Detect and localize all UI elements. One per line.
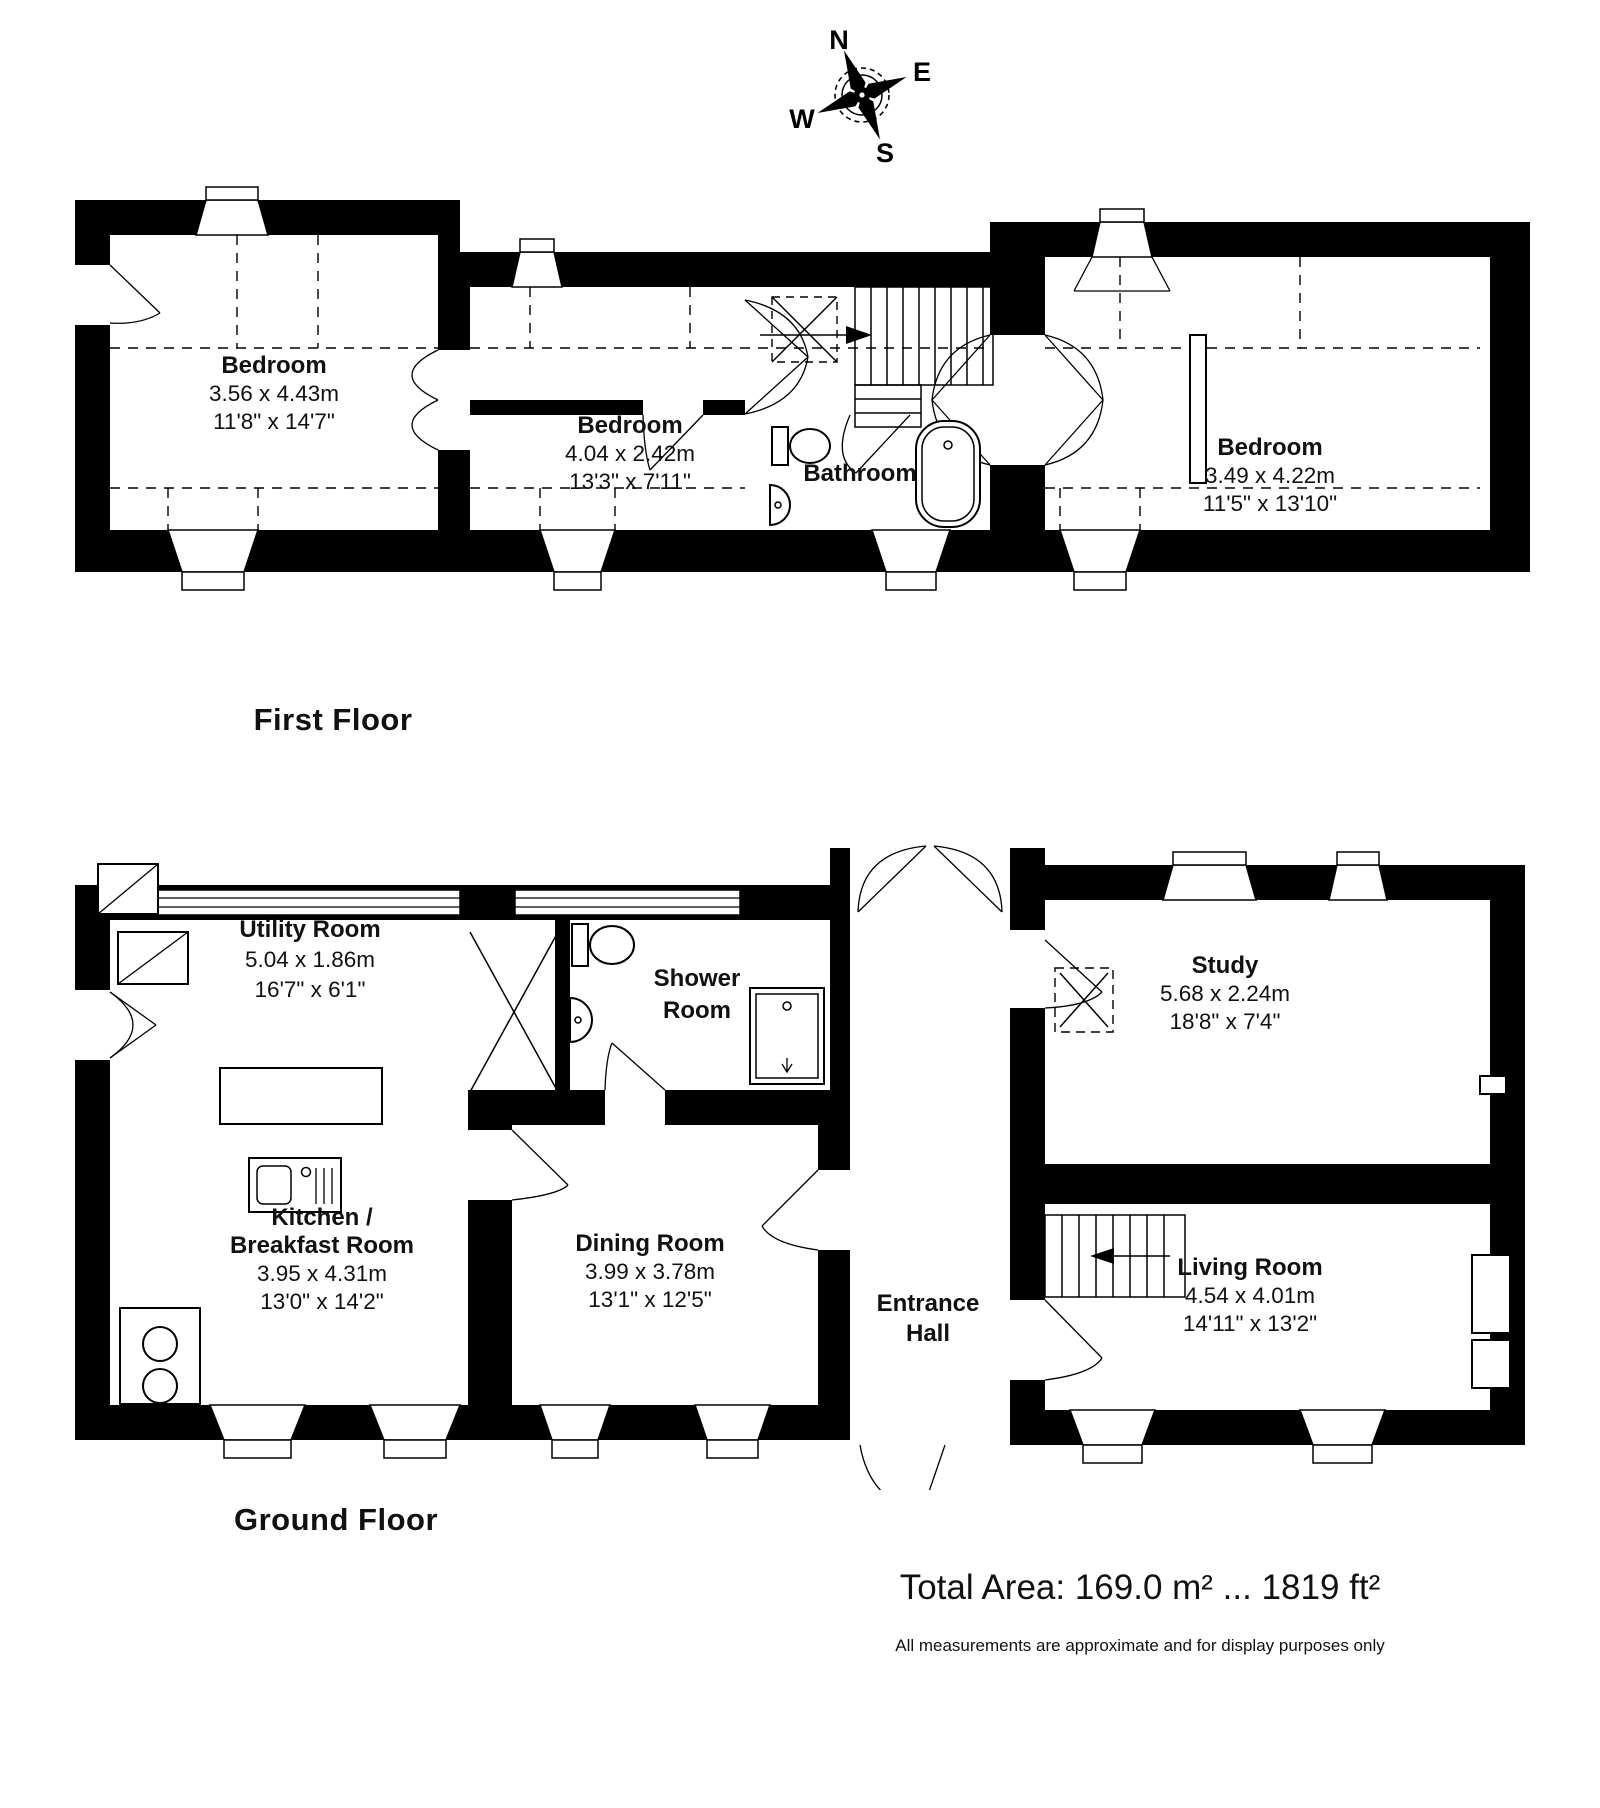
- gf-bay-living-1: [1070, 1410, 1155, 1463]
- ff-bay-bedroom2: [540, 530, 615, 590]
- gf-kitchen-name-1: Kitchen /: [271, 1204, 373, 1231]
- gf-shower-left-wall: [555, 920, 570, 1090]
- ff-bedroom3-metric: 3.49 x 4.22m: [1205, 463, 1335, 488]
- gf-shower-name-1: Shower: [654, 965, 741, 992]
- gf-kitchen-divider-bar: [468, 1200, 512, 1335]
- compass-w: W: [789, 104, 815, 134]
- ff-window-top-left: [196, 187, 268, 235]
- gf-kitchen-metric: 3.95 x 4.31m: [257, 1261, 387, 1286]
- gf-utility-imperial: 16'7" x 6'1": [255, 977, 366, 1002]
- gf-gap-hall-bottom-door: [860, 1410, 945, 1445]
- gf-window-band-left: [155, 890, 460, 915]
- ff-bedroom1-metric: 3.56 x 4.43m: [209, 381, 339, 406]
- gf-living-name: Living Room: [1177, 1254, 1322, 1281]
- gf-study-name: Study: [1192, 952, 1259, 979]
- gf-kitchen-divider-low: [475, 1335, 505, 1405]
- gf-gap-dining-hall: [818, 1170, 850, 1250]
- ff-bedroom2-name: Bedroom: [577, 412, 682, 439]
- gf-utility-counter: [220, 1068, 382, 1124]
- first-floor-title: First Floor: [183, 702, 483, 738]
- compass-rose: N E S W: [740, 25, 980, 170]
- disclaimer-text: All measurements are approximate and for…: [760, 1636, 1520, 1656]
- total-area-text: Total Area: 169.0 m² ... 1819 ft²: [760, 1568, 1520, 1608]
- ff-bathroom-name: Bathroom: [803, 460, 916, 487]
- gf-gap-left-wall: [75, 990, 110, 1060]
- gf-hall-right-wall-top: [1010, 848, 1045, 865]
- gf-gap-kitchen-dining: [468, 1130, 512, 1200]
- gf-study-imperial: 18'8" x 7'4": [1170, 1009, 1281, 1034]
- ff-bedroom3-imperial: 11'5" x 13'10": [1203, 491, 1337, 516]
- gf-divider-study-living-b: [1310, 1164, 1490, 1204]
- ff-bedroom2-imperial: 13'3" x 7'11": [569, 469, 691, 494]
- ff-corridor-floor: [470, 287, 745, 400]
- gf-gap-hall-living: [1010, 1300, 1045, 1380]
- ff-bedroom2-metric: 4.04 x 2.42m: [565, 441, 695, 466]
- first-floor-plan: Bedroom 3.56 x 4.43m 11'8" x 14'7" Bedro…: [60, 185, 1540, 605]
- compass-hub-dot: [859, 92, 864, 97]
- gf-bay-living-2: [1300, 1410, 1385, 1463]
- gf-window-band-right: [515, 890, 740, 915]
- gf-living-wall-box: [1480, 1076, 1506, 1094]
- gf-living-radiator-2: [1472, 1340, 1510, 1388]
- gf-hall-left-wall: [830, 848, 850, 1130]
- gf-entrance-name-1: Entrance: [877, 1290, 980, 1317]
- ff-bathtub-icon: [916, 421, 980, 527]
- ff-window-top-middle: [512, 239, 562, 287]
- compass-s: S: [876, 138, 894, 168]
- gf-living-imperial: 14'11" x 13'2": [1183, 1311, 1317, 1336]
- gf-dining-metric: 3.99 x 3.78m: [585, 1259, 715, 1284]
- ff-bedroom1-name: Bedroom: [221, 352, 326, 379]
- compass-e: E: [913, 57, 931, 87]
- gf-door-swing-hall-rear: [860, 1445, 945, 1490]
- compass-n: N: [829, 25, 849, 55]
- floorplan-page: N E S W: [0, 0, 1600, 1808]
- gf-bay-dining-2: [695, 1405, 770, 1458]
- gf-utility-appliance-inner: [118, 932, 188, 984]
- gf-window-study-2: [1329, 852, 1387, 900]
- ff-bay-bedroom1: [168, 530, 258, 590]
- gf-bay-kitchen-1: [210, 1405, 305, 1458]
- ff-door-gap-bedroom3: [990, 335, 1045, 465]
- gf-utility-name: Utility Room: [239, 916, 380, 943]
- gf-shower-tray-icon: [750, 988, 824, 1084]
- gf-utility-metric: 5.04 x 1.86m: [245, 947, 375, 972]
- gf-dining-name: Dining Room: [575, 1230, 724, 1257]
- ff-window-seat: [1190, 335, 1206, 483]
- gf-gap-shower-door: [605, 1090, 665, 1125]
- gf-dining-imperial: 13'1" x 12'5": [588, 1287, 711, 1312]
- ff-bay-bathroom: [872, 530, 950, 590]
- gf-shower-name-2: Room: [663, 997, 731, 1024]
- gf-entrance-name-2: Hall: [906, 1320, 950, 1347]
- gf-kitchen-imperial: 13'0" x 14'2": [260, 1289, 383, 1314]
- gf-toilet-icon: [572, 924, 634, 966]
- gf-anteroom-floor: [468, 1040, 555, 1090]
- gf-divider-study-living-a: [1045, 1164, 1230, 1204]
- gf-kitchen-name-2: Breakfast Room: [230, 1232, 414, 1259]
- gf-living-metric: 4.54 x 4.01m: [1185, 1283, 1315, 1308]
- ff-bedroom1-imperial: 11'8" x 14'7": [213, 409, 335, 434]
- gf-bay-dining-1: [540, 1405, 610, 1458]
- gf-bay-kitchen-2: [370, 1405, 460, 1458]
- ground-floor-title: Ground Floor: [186, 1502, 486, 1538]
- gf-study-metric: 5.68 x 2.24m: [1160, 981, 1290, 1006]
- gf-window-study-1: [1163, 852, 1256, 900]
- ground-floor-plan: Utility Room 5.04 x 1.86m 16'7" x 6'1" S…: [60, 840, 1540, 1490]
- ff-bedroom3-floor: [1045, 257, 1490, 530]
- gf-living-radiator-1: [1472, 1255, 1510, 1333]
- ff-bedroom3-name: Bedroom: [1217, 434, 1322, 461]
- gf-gap-hall-study: [1010, 930, 1045, 1008]
- gf-utility-appliance-outer: [98, 864, 158, 914]
- ff-door-gap-left-wall: [75, 265, 110, 325]
- gf-cooker-icon: [120, 1308, 200, 1404]
- ff-bay-bedroom3: [1060, 530, 1140, 590]
- ff-door-gap-b1-b2: [438, 350, 470, 450]
